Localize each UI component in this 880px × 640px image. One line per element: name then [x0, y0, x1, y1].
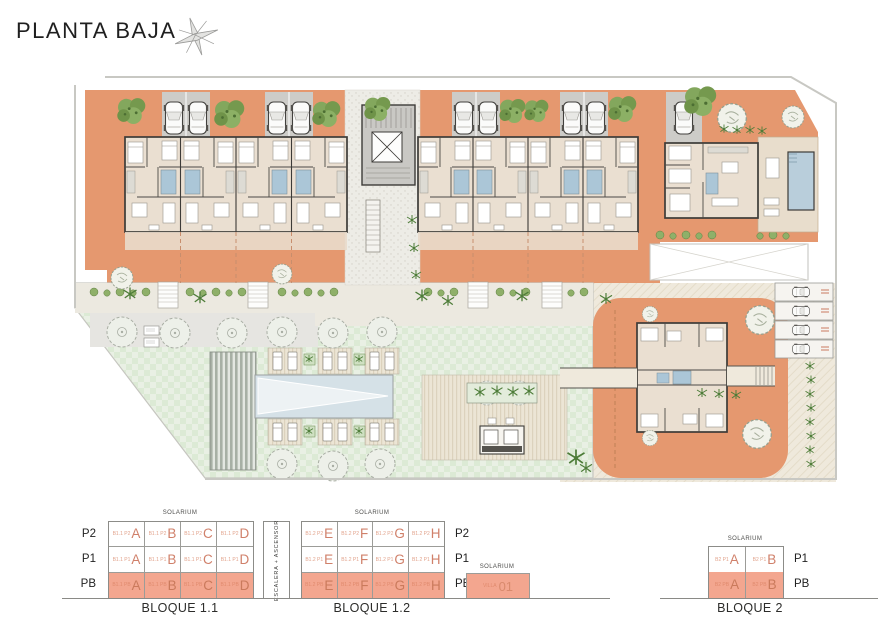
escalera-label: ESCALERA + ASCENSOR [274, 520, 280, 601]
legend-floor-label: PB [786, 571, 820, 596]
legend-unit-cell: B1.2 P1E [302, 547, 338, 572]
legend-unit-cell: B1.2 P2H [409, 522, 445, 547]
villa-pool [788, 152, 814, 210]
legend-floor-label: P1 [62, 546, 104, 571]
legend-unit-cell: B1.1 PBC [181, 573, 217, 598]
pergola [210, 352, 256, 470]
legend-unit-cell: B1.1 PBA [109, 573, 145, 598]
legend-unit-cell: B1.2 P1H [409, 547, 445, 572]
communal-pool [255, 375, 393, 418]
legend-unit-cell: B1.1 P1D [217, 547, 253, 572]
legend-unit-cell: B2 P1B [746, 547, 783, 572]
legend-floors-bloque11: P2P1PB [62, 521, 104, 597]
legend-unit-cell: B1.1 P2C [181, 522, 217, 547]
empty-plot [650, 244, 808, 280]
legend-unit-cell: B1.2 P1G [373, 547, 409, 572]
legend-grid-bloque11: B1.1 P2AB1.1 P2BB1.1 P2CB1.1 P2DB1.1 P1A… [108, 521, 254, 599]
legend-floors-bloque2: P1PB [786, 546, 820, 597]
floor-plan-sheet: PLANTA BAJA [0, 0, 880, 640]
compass-star-icon [170, 16, 222, 60]
legend-unit-cell: B2 P1A [709, 547, 746, 572]
legend-escalera: ESCALERA + ASCENSOR [263, 521, 290, 599]
garden-stair [366, 200, 380, 252]
caption-bloque2: BLOQUE 2 [700, 601, 800, 615]
villa-prefix: VILLA [483, 583, 497, 589]
legend-grid-bloque2: B2 P1AB2 P1BB2 PBAB2 PBB [708, 546, 784, 599]
bbq-deck [422, 375, 567, 460]
solarium-label: SOLARIUM [708, 536, 782, 542]
villa-building [665, 137, 818, 232]
page-title: PLANTA BAJA [16, 18, 176, 44]
legend-unit-cell: B2 PBA [709, 572, 746, 597]
legend-unit-cell: B1.1 P1C [181, 547, 217, 572]
legend-unit-cell: B1.2 PBE [302, 573, 338, 598]
legend-unit-cell: B1.1 P2B [145, 522, 181, 547]
caption-bloque11: BLOQUE 1.1 [108, 601, 252, 615]
solarium-label: SOLARIUM [301, 510, 443, 516]
legend-floor-label: P1 [786, 546, 820, 571]
legend-unit-cell: B1.1 P1B [145, 547, 181, 572]
caption-bloque12: BLOQUE 1.2 [301, 601, 443, 615]
legend-unit-cell: B1.2 P2G [373, 522, 409, 547]
legend-floor-label: P2 [447, 521, 481, 546]
legend-unit-cell: B1.2 PBH [409, 573, 445, 598]
legend-villa-cell: VILLA 01 [466, 573, 530, 599]
legend-unit-cell: B1.2 PBF [338, 573, 374, 598]
bloque-2-building [637, 323, 727, 432]
site-plan [60, 70, 870, 500]
legend-unit-cell: B1.2 P1F [338, 547, 374, 572]
legend-floor-label: PB [62, 572, 104, 597]
legend-floor-label: P2 [62, 521, 104, 546]
villa-number: 01 [499, 580, 513, 593]
legend-unit-cell: B1.1 P2A [109, 522, 145, 547]
legend-unit-cell: B1.2 P2E [302, 522, 338, 547]
legend-unit-cell: B1.2 P2F [338, 522, 374, 547]
legend-unit-cell: B1.1 PBB [145, 573, 181, 598]
legend-unit-cell: B1.2 PBG [373, 573, 409, 598]
solarium-label: SOLARIUM [108, 510, 252, 516]
legend-unit-cell: B1.1 P1A [109, 547, 145, 572]
legend-baseline [660, 598, 878, 599]
legend-baseline [62, 598, 610, 599]
legend-unit-cell: B2 PBB [746, 572, 783, 597]
solarium-label: SOLARIUM [466, 564, 528, 570]
legend-unit-cell: B1.1 PBD [217, 573, 253, 598]
legend-unit-cell: B1.1 P2D [217, 522, 253, 547]
legend-grid-bloque12: B1.2 P2EB1.2 P2FB1.2 P2GB1.2 P2HB1.2 P1E… [301, 521, 445, 599]
